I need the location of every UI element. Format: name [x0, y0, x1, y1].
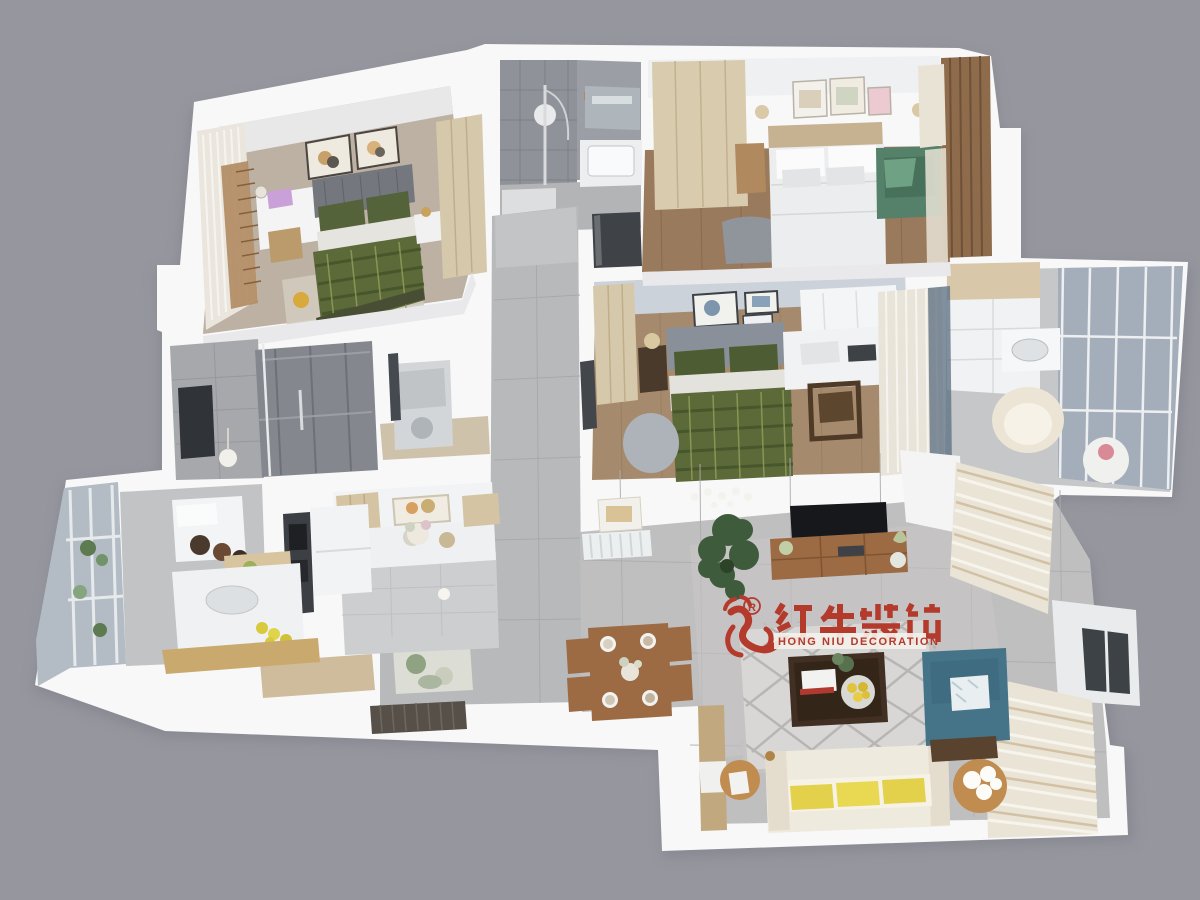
- svg-text:R: R: [748, 602, 756, 614]
- svg-text:HONG NIU DECORATION: HONG NIU DECORATION: [778, 636, 940, 648]
